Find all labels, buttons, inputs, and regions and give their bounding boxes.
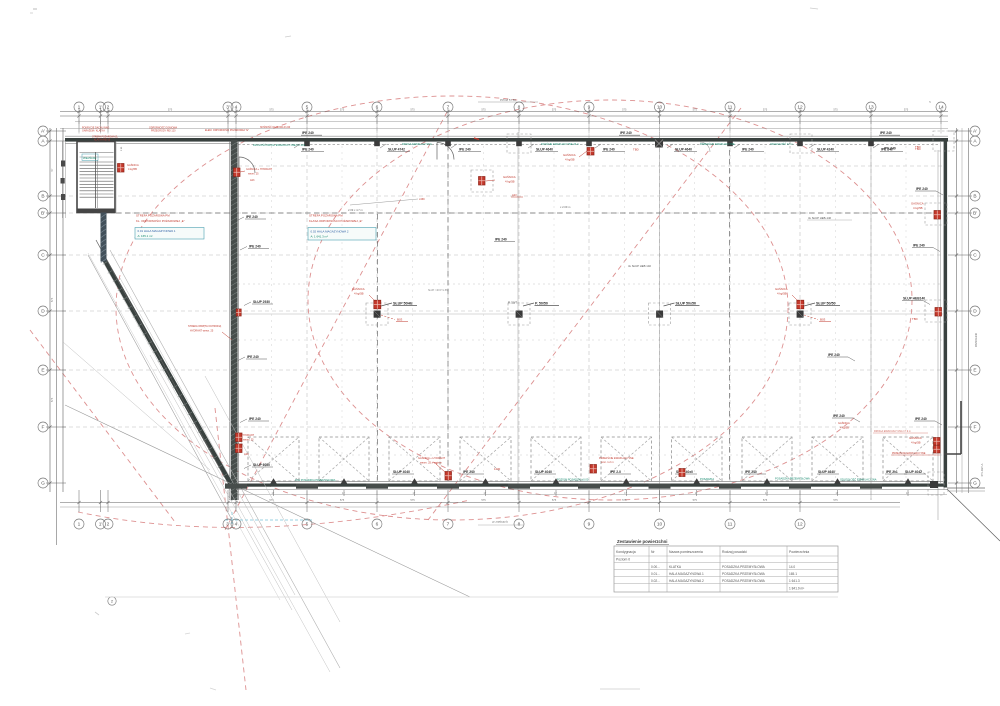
svg-text:B03: B03 [397, 318, 403, 322]
svg-text:575: 575 [552, 498, 557, 502]
svg-text:2.09 x 4.7 m: 2.09 x 4.7 m [348, 208, 364, 212]
svg-text:GAŚNICA + HYDRANT: GAŚNICA + HYDRANT [246, 168, 273, 171]
svg-text:POSADZKA PRZEMYSŁOWA: POSADZKA PRZEMYSŁOWA [722, 565, 766, 569]
svg-text:x469: x469 [419, 197, 425, 201]
svg-text:4x SŁUP HEB-140: 4x SŁUP HEB-140 [808, 216, 832, 220]
svg-text:IPE 240: IPE 240 [745, 470, 757, 474]
svg-text:SŁUP 2930: SŁUP 2930 [253, 300, 270, 304]
svg-text:DROGA EWAKUACYJNA 17.9 m: DROGA EWAKUACYJNA 17.9 m [874, 430, 911, 433]
svg-text:11: 11 [728, 522, 733, 528]
svg-text:B: B [973, 194, 976, 200]
svg-text:SŁUP 4042: SŁUP 4042 [905, 470, 922, 474]
svg-text:1: 1 [78, 522, 81, 528]
svg-text:A: 1 641.3 m²: A: 1 641.3 m² [311, 235, 328, 239]
svg-text:P.01 POSADZKA PRZEMYSŁOWA: P.01 POSADZKA PRZEMYSŁOWA [295, 478, 336, 482]
svg-text:IPE 240: IPE 240 [495, 238, 507, 242]
svg-text:TBD: TBD [915, 145, 921, 149]
svg-text:A23: A23 [250, 179, 255, 182]
svg-text:IPE 240: IPE 240 [302, 131, 314, 135]
svg-text:DROGA EWAKUACYJNA: DROGA EWAKUACYJNA [402, 142, 432, 146]
svg-text:SŁUP 4240: SŁUP 4240 [817, 148, 834, 152]
svg-text:4 kg/5B: 4 kg/5B [911, 440, 921, 444]
svg-text:165.1: 165.1 [789, 572, 797, 576]
svg-text:9: 9 [588, 105, 591, 111]
svg-text:KLATKA: KLATKA [669, 565, 682, 569]
svg-text:IPE 240: IPE 240 [880, 131, 892, 135]
svg-text:Zestawienie powierzchni: Zestawienie powierzchni [617, 539, 667, 544]
svg-text:STREFA POŻAROWA PM: STREFA POŻAROWA PM [309, 213, 343, 218]
svg-text:IPE 240: IPE 240 [915, 417, 927, 421]
svg-text:F: F [974, 425, 977, 431]
svg-text:575: 575 [340, 498, 345, 502]
svg-text:6: 6 [376, 105, 379, 111]
svg-text:575: 575 [693, 108, 698, 112]
svg-text:KLASA ODPORNOŚCI POŻAROWEJ „E”: KLASA ODPORNOŚCI POŻAROWEJ „E” [309, 218, 363, 223]
svg-text:575: 575 [833, 108, 838, 112]
svg-text:4 kg/5B: 4 kg/5B [565, 157, 575, 161]
svg-text:575: 575 [693, 498, 698, 502]
svg-text:wewn. 25: wewn. 25 [243, 438, 254, 441]
svg-text:G: G [41, 481, 45, 487]
svg-text:0.00...: 0.00... [651, 565, 660, 569]
svg-text:4 kg/5B: 4 kg/5B [354, 292, 364, 296]
svg-text:IPE 240: IPE 240 [249, 417, 261, 421]
svg-text:SŁUP / 40 DYL 860: SŁUP / 40 DYL 860 [428, 289, 449, 292]
svg-text:P.POŻ 57.50: P.POŻ 57.50 [500, 97, 516, 102]
svg-text:IPE 240: IPE 240 [828, 353, 840, 357]
svg-text:1400: 1400 [494, 467, 501, 471]
svg-text:A: 165.1 m²: A: 165.1 m² [138, 234, 153, 238]
svg-text:POSADZKA PRZEMYSŁOWA: POSADZKA PRZEMYSŁOWA [722, 572, 766, 576]
svg-text:575: 575 [481, 108, 486, 112]
svg-text:4: 4 [235, 522, 238, 528]
svg-text:E: E [41, 368, 44, 374]
svg-text:7: 7 [447, 105, 450, 111]
svg-text:575: 575 [168, 108, 173, 112]
svg-text:SŁUP 4640: SŁUP 4640 [536, 148, 553, 152]
svg-text:Powierzchnia: Powierzchnia [789, 550, 809, 554]
svg-text:IPE500x240: IPE500x240 [974, 332, 978, 347]
svg-text:IPE 240: IPE 240 [884, 147, 896, 151]
svg-text:10: 10 [657, 522, 663, 528]
svg-text:SŁUP 6050: SŁUP 6050 [253, 463, 270, 467]
svg-text:B': B' [41, 211, 45, 217]
svg-text:A': A' [973, 129, 977, 135]
svg-text:1': 1' [99, 105, 103, 111]
svg-text:wewn. 25: wewn. 25 [248, 172, 259, 175]
svg-text:F: F [42, 425, 45, 431]
svg-text:KL. ODPORNOŚCI POŻAROWEJ „E”: KL. ODPORNOŚCI POŻAROWEJ „E” [136, 218, 185, 223]
svg-text:SŁUP 4742: SŁUP 4742 [388, 148, 405, 152]
svg-text:3': 3' [226, 522, 230, 528]
svg-text:ELEM. ODPORNOŚCI POŻAROWEJ "E": ELEM. ODPORNOŚCI POŻAROWEJ "E" [205, 129, 249, 132]
svg-text:9: 9 [588, 522, 591, 528]
svg-text:4 kg/5B: 4 kg/5B [913, 206, 923, 210]
svg-text:B': B' [973, 211, 977, 217]
svg-text:13: 13 [868, 105, 874, 111]
svg-text:3': 3' [226, 105, 230, 111]
svg-text:IPE 240: IPE 240 [302, 148, 314, 152]
svg-text:KLATKA REI 60: KLATKA REI 60 [94, 138, 111, 141]
svg-text:575: 575 [763, 108, 768, 112]
svg-text:PRZEGRODY REI 120: PRZEGRODY REI 120 [151, 130, 176, 133]
svg-text:4 kg/5B: 4 kg/5B [505, 179, 515, 183]
svg-text:4 kg/5B: 4 kg/5B [128, 167, 137, 171]
svg-text:575: 575 [340, 108, 345, 112]
svg-text:2: 2 [107, 105, 110, 111]
svg-text:x 2.09 m: x 2.09 m [560, 205, 571, 209]
svg-text:SŁUP HEB140: SŁUP HEB140 [903, 297, 925, 301]
svg-text:A23: A23 [512, 193, 517, 197]
svg-text:575: 575 [410, 498, 415, 502]
svg-text:1 641.3: 1 641.3 [789, 579, 800, 583]
svg-text:GAŚNICA: GAŚNICA [503, 174, 516, 179]
svg-text:4x SŁUP HEB 140: 4x SŁUP HEB 140 [628, 264, 651, 268]
svg-text:IPE 240: IPE 240 [247, 355, 259, 359]
svg-text:G: G [973, 481, 977, 487]
svg-text:IPE 240: IPE 240 [916, 187, 928, 191]
svg-text:STREFA OBJĘTA OCHRONĄ: STREFA OBJĘTA OCHRONĄ [188, 325, 221, 328]
svg-text:GAŚNICA: GAŚNICA [775, 286, 788, 291]
svg-text:5: 5 [306, 105, 309, 111]
svg-text:1 841.9 m²: 1 841.9 m² [789, 587, 804, 591]
svg-text:IPS-DET-A: IPS-DET-A [980, 463, 984, 476]
svg-text:C: C [973, 253, 977, 259]
svg-text:IPE 2x1: IPE 2x1 [886, 470, 898, 474]
svg-text:SŁUP 4640: SŁUP 4640 [675, 148, 692, 152]
svg-text:POSADZKA: POSADZKA [700, 477, 714, 481]
svg-text:SŁUP 4040: SŁUP 4040 [393, 470, 410, 474]
svg-text:TBD: TBD [633, 148, 639, 152]
svg-text:12: 12 [797, 105, 803, 111]
svg-text:SŁUP 50/50: SŁUP 50/50 [816, 302, 836, 306]
svg-text:575: 575 [481, 498, 486, 502]
svg-text:TBD: TBD [912, 317, 918, 321]
svg-text:D: D [41, 309, 45, 315]
svg-text:SŁUP 50HE: SŁUP 50HE [393, 302, 413, 306]
svg-text:IPE 2-0: IPE 2-0 [610, 470, 621, 474]
svg-text:IPE 240: IPE 240 [620, 131, 632, 135]
svg-text:IPE 240: IPE 240 [463, 470, 475, 474]
svg-text:szer. 1.2 m: szer. 1.2 m [601, 460, 614, 464]
svg-text:8: 8 [518, 105, 521, 111]
svg-text:GAŚNICA: GAŚNICA [911, 201, 924, 206]
svg-text:IPE 240: IPE 240 [249, 245, 261, 249]
svg-text:POSADZKA PRZEMYSŁOWA: POSADZKA PRZEMYSŁOWA [775, 477, 810, 481]
svg-text:0.02...: 0.02... [651, 579, 660, 583]
svg-text:IPE 240: IPE 240 [603, 148, 615, 152]
svg-text:575: 575 [410, 108, 415, 112]
svg-text:C: C [41, 253, 45, 259]
svg-text:575: 575 [50, 297, 54, 302]
svg-text:P. 50/7: P. 50/7 [508, 301, 517, 305]
svg-text:Rodzaj posadzki: Rodzaj posadzki [722, 550, 747, 554]
svg-text:IPE 240: IPE 240 [833, 414, 845, 418]
svg-text:GAŚNICA: GAŚNICA [563, 152, 576, 157]
svg-text:575: 575 [904, 108, 909, 112]
svg-text:0.01 HALA MAGAZYNOWA 1: 0.01 HALA MAGAZYNOWA 1 [138, 229, 176, 233]
svg-text:wewn. 25 z wężem: wewn. 25 z wężem [420, 460, 442, 464]
svg-text:GARAŻEM / KLATKA: GARAŻEM / KLATKA [82, 130, 105, 133]
svg-text:E: E [973, 368, 976, 374]
svg-text:w metrach: w metrach [492, 520, 508, 524]
svg-text:Nazwa pomieszczenia: Nazwa pomieszczenia [669, 550, 703, 554]
svg-text:1': 1' [99, 522, 103, 528]
svg-text:IPE 240: IPE 240 [459, 148, 471, 152]
svg-text:4 kg/5B: 4 kg/5B [840, 425, 849, 429]
svg-text:PRZEJŚCIE EWAKUACYJNE: PRZEJŚCIE EWAKUACYJNE [892, 452, 926, 455]
svg-text:575: 575 [763, 498, 768, 502]
svg-text:IPE 240: IPE 240 [913, 244, 925, 248]
svg-text:HYDRANT wewn. 25: HYDRANT wewn. 25 [190, 329, 214, 332]
svg-text:HALA MAGAZYNOWA 2: HALA MAGAZYNOWA 2 [669, 579, 704, 583]
svg-text:10: 10 [657, 105, 663, 111]
svg-text:5: 5 [306, 522, 309, 528]
svg-text:4 kg/5B: 4 kg/5B [777, 292, 787, 296]
svg-text:4: 4 [235, 105, 238, 111]
svg-text:12: 12 [797, 522, 803, 528]
svg-text:A23: A23 [244, 452, 249, 456]
svg-text:0.02 HALA MAGAZYNOWA 2: 0.02 HALA MAGAZYNOWA 2 [311, 229, 349, 233]
svg-text:GAŚNICA: GAŚNICA [352, 286, 365, 291]
svg-text:NOŚNOŚĆ OGNIOWA R 240: NOŚNOŚĆ OGNIOWA R 240 [260, 126, 291, 129]
svg-text:STREFA POŻAROWA ZL: STREFA POŻAROWA ZL [92, 136, 119, 139]
svg-text:0.01...: 0.01... [651, 572, 660, 576]
svg-text:D: D [973, 309, 977, 315]
svg-text:POSADZKA PRZEMYSŁOWA: POSADZKA PRZEMYSŁOWA [722, 579, 766, 583]
svg-text:HYDRANT: HYDRANT [242, 434, 255, 437]
svg-text:11: 11 [728, 105, 733, 111]
svg-text:WEJŚCIE: WEJŚCIE [83, 155, 96, 160]
svg-text:14: 14 [938, 105, 944, 111]
svg-text:HALA MAGAZYNOWA 1: HALA MAGAZYNOWA 1 [669, 572, 704, 576]
svg-text:B: B [41, 194, 44, 200]
svg-text:Kondygnacja: Kondygnacja [616, 550, 636, 554]
svg-text:6: 6 [376, 522, 379, 528]
svg-text:14.0: 14.0 [789, 565, 795, 569]
svg-text:575: 575 [622, 108, 627, 112]
svg-text:B03: B03 [820, 318, 826, 322]
svg-text:P. 50/50: P. 50/50 [535, 302, 548, 306]
svg-text:575: 575 [269, 108, 274, 112]
svg-text:Poziom 0: Poziom 0 [616, 558, 630, 562]
svg-text:STREFA POŻAROWA PM: STREFA POŻAROWA PM [136, 213, 170, 218]
svg-text:A': A' [41, 129, 45, 135]
svg-text:SŁUP 4040: SŁUP 4040 [535, 470, 552, 474]
svg-text:SŁUP 4640: SŁUP 4640 [818, 470, 835, 474]
svg-text:575: 575 [552, 108, 557, 112]
svg-text:575: 575 [622, 498, 627, 502]
svg-text:1: 1 [78, 105, 81, 111]
svg-text:2: 2 [107, 522, 110, 528]
svg-text:IPE 240: IPE 240 [742, 148, 754, 152]
svg-text:SŁUP 50x50: SŁUP 50x50 [676, 302, 697, 306]
svg-text:GAŚNICA: GAŚNICA [909, 435, 922, 440]
svg-text:IPE 240: IPE 240 [246, 215, 258, 219]
svg-text:575: 575 [50, 397, 54, 402]
svg-text:POZIOM POSADZKI ±0.00: POZIOM POSADZKI ±0.00 [557, 477, 589, 481]
svg-text:7: 7 [447, 522, 450, 528]
svg-text:8: 8 [518, 522, 521, 528]
svg-text:575: 575 [833, 498, 838, 502]
